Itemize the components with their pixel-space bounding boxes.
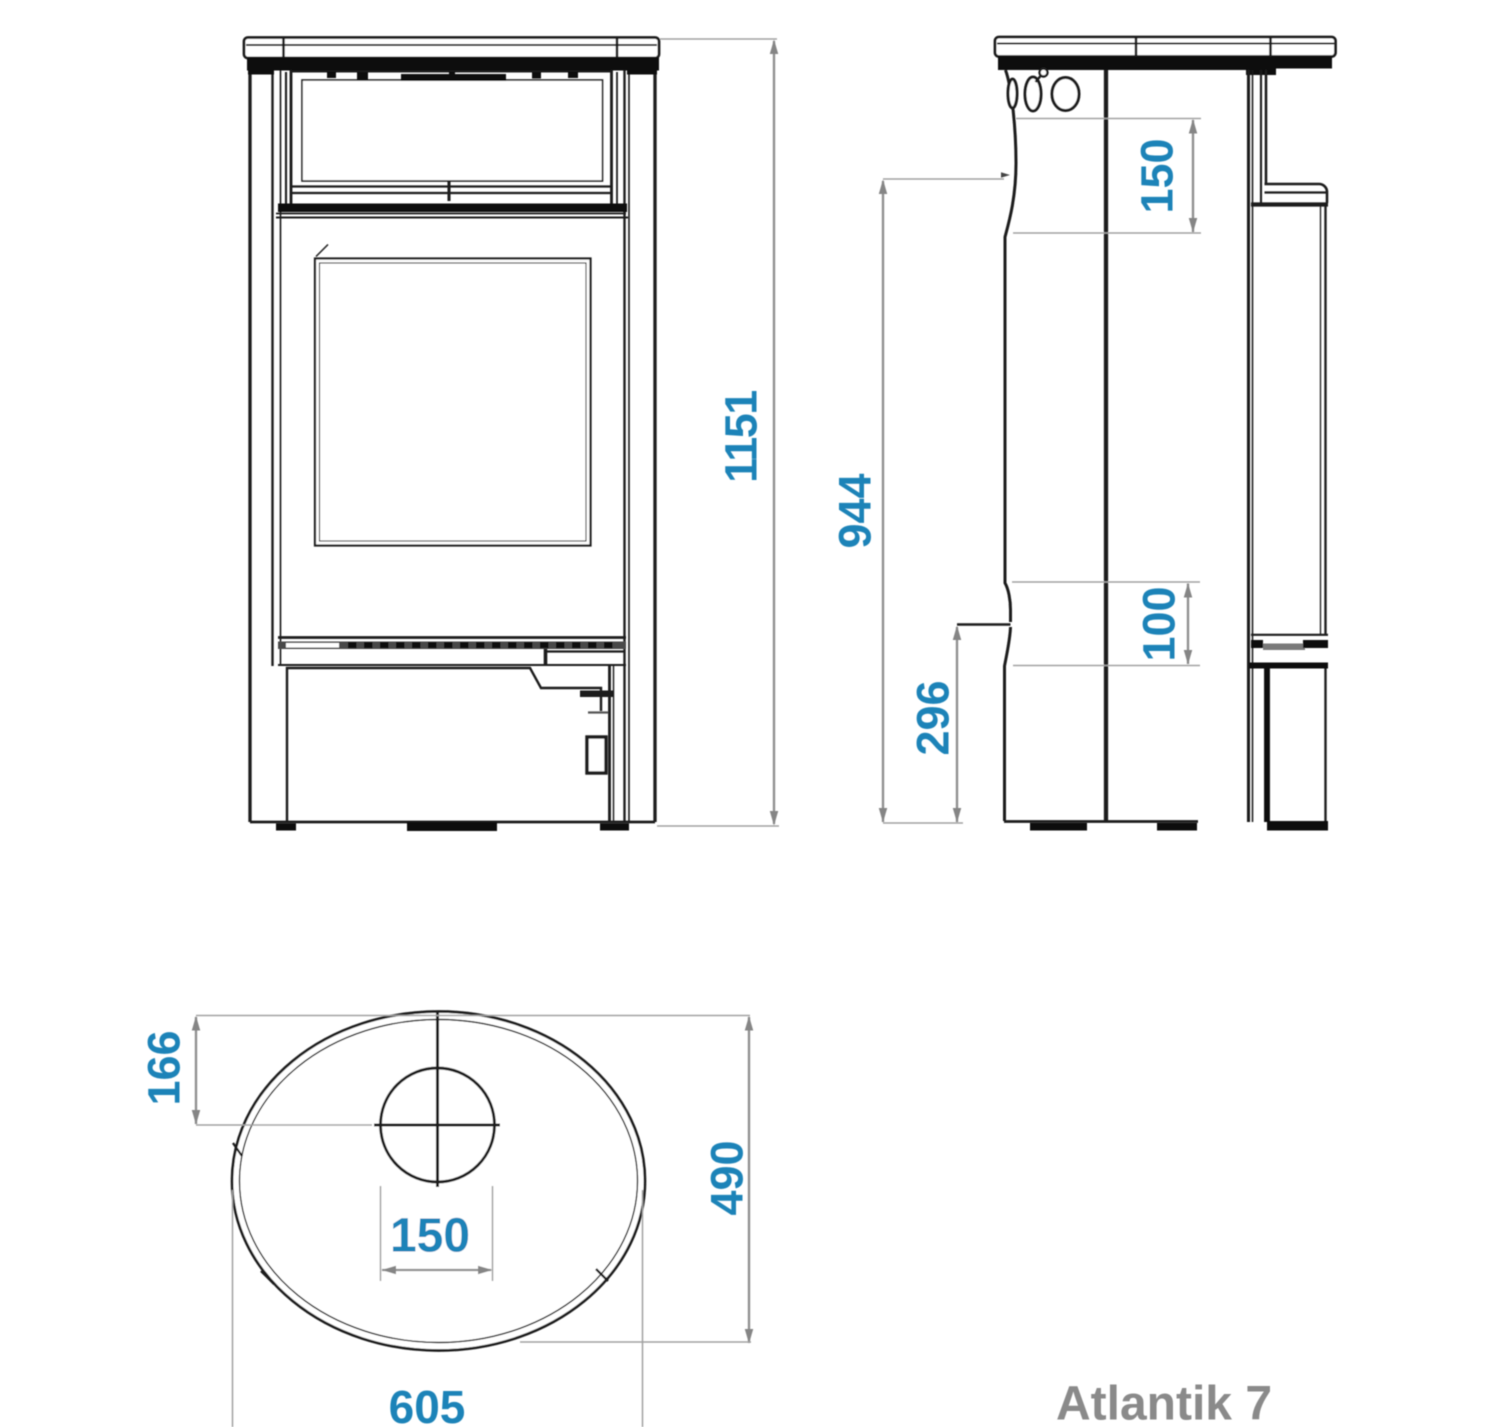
svg-text:166: 166 — [139, 1030, 190, 1105]
svg-text:100: 100 — [1134, 586, 1185, 661]
svg-text:490: 490 — [702, 1140, 753, 1215]
svg-text:296: 296 — [908, 680, 959, 755]
svg-text:Atlantik 7: Atlantik 7 — [1056, 1378, 1272, 1427]
svg-text:150: 150 — [1132, 138, 1183, 213]
svg-text:1151: 1151 — [716, 391, 767, 483]
svg-text:150: 150 — [390, 1210, 470, 1263]
svg-text:605: 605 — [389, 1381, 466, 1427]
svg-text:944: 944 — [830, 473, 881, 548]
